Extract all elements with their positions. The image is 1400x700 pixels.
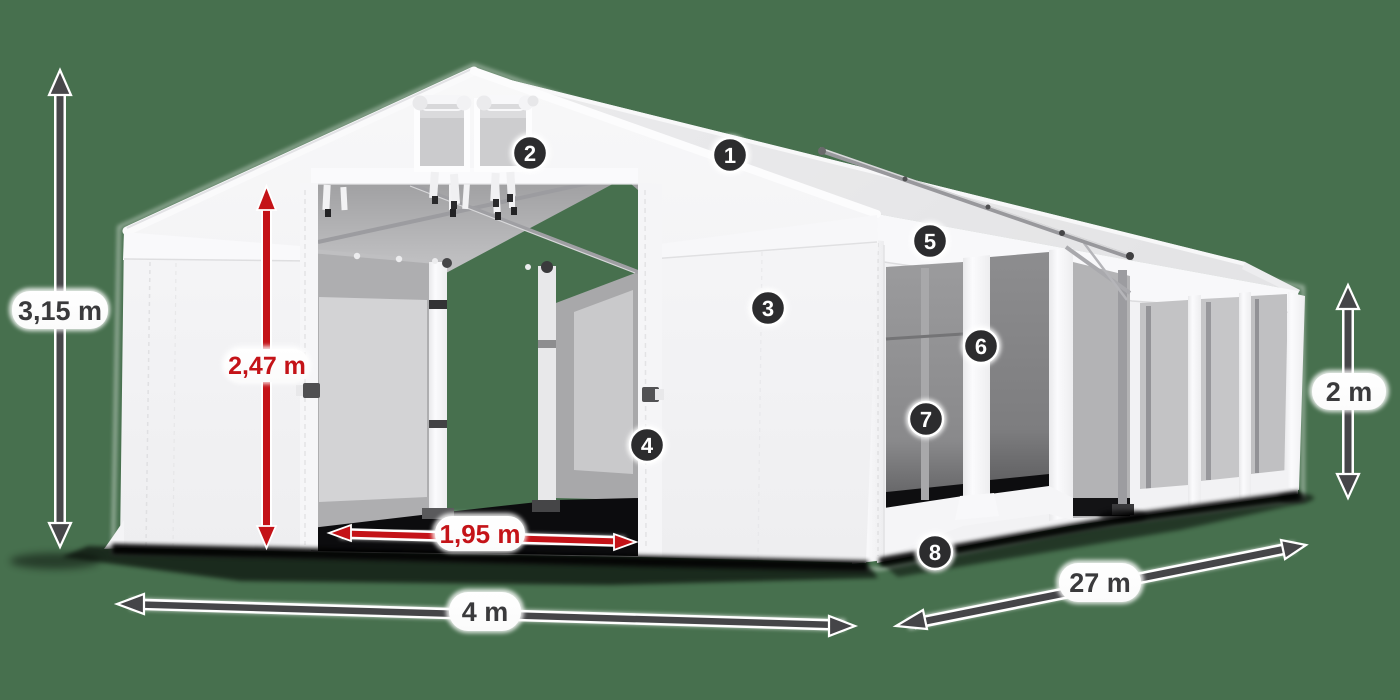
svg-text:8: 8: [929, 540, 941, 565]
svg-text:27 m: 27 m: [1069, 568, 1131, 598]
svg-text:1: 1: [724, 143, 736, 168]
svg-text:2: 2: [524, 141, 536, 166]
svg-text:4 m: 4 m: [462, 597, 509, 627]
svg-text:2 m: 2 m: [1326, 377, 1373, 407]
svg-text:3: 3: [762, 296, 774, 321]
svg-text:3,15 m: 3,15 m: [18, 296, 102, 326]
svg-text:2,47 m: 2,47 m: [228, 352, 306, 380]
svg-text:7: 7: [920, 407, 932, 432]
svg-text:4: 4: [641, 433, 654, 458]
svg-text:5: 5: [924, 229, 936, 254]
svg-text:6: 6: [975, 334, 987, 359]
svg-text:1,95 m: 1,95 m: [440, 519, 521, 549]
